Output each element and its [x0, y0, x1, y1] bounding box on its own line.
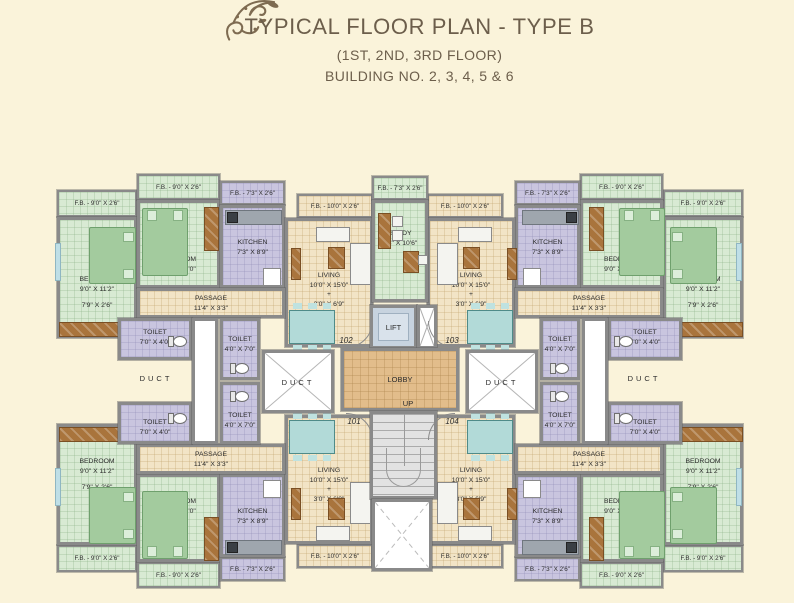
- toilet-room: TOILET 7'0" X 4'0": [118, 318, 192, 360]
- flower-bed: F.B. - 9'0" X 2'6": [663, 190, 743, 217]
- dining-table: [289, 310, 335, 344]
- coffee-table: [328, 247, 345, 269]
- room-label: TOILET 4'0" X 7'0": [223, 411, 257, 430]
- stair-landing: [386, 448, 421, 487]
- flower-bed: F.B. - 7'3" X 2'6": [220, 557, 285, 581]
- tv-unit: [291, 248, 301, 280]
- toilet-room: TOILET 4'0" X 7'0": [540, 382, 580, 444]
- room-size: 7'9" X 2'6": [666, 301, 740, 311]
- sofa: [316, 227, 350, 242]
- room-size: 11'4" X 3'3": [140, 460, 282, 470]
- plus-sign: +: [430, 290, 512, 300]
- double-bed: [670, 227, 717, 284]
- toilet-room: TOILET 4'0" X 7'0": [220, 382, 260, 444]
- room-label: KITCHEN 7'3" X 8'9": [223, 507, 282, 526]
- room-size: 9'0" X 11'2": [60, 467, 134, 477]
- passage: PASSAGE 11'4" X 3'3": [515, 444, 663, 474]
- lift-label: LIFT: [373, 323, 414, 332]
- room-name: TOILET: [543, 335, 577, 345]
- room-name: TOILET: [223, 335, 257, 345]
- passage: PASSAGE 11'4" X 3'3": [137, 444, 285, 474]
- fb-label: F.B. - 9'0" X 2'6": [74, 200, 119, 207]
- sofa: [350, 482, 371, 524]
- dining-table: [467, 310, 513, 344]
- toilet-room: TOILET 7'0" X 4'0": [608, 318, 682, 360]
- bedroom-room: BEDROOM 9'0" X 10'0": [580, 474, 663, 562]
- passage: PASSAGE 11'4" X 3'3": [137, 288, 285, 318]
- wardrobe: [589, 207, 604, 251]
- sofa: [316, 526, 350, 541]
- fridge: [263, 268, 281, 286]
- flower-bed: F.B. - 7'3" X 2'6": [372, 176, 428, 200]
- room-name: PASSAGE: [140, 450, 282, 460]
- window: [55, 243, 61, 281]
- sofa: [350, 243, 371, 285]
- double-bed: [142, 491, 188, 559]
- duct-shaft: [582, 318, 608, 444]
- room-size: 11'4" X 3'3": [140, 304, 282, 314]
- double-bed: [89, 487, 136, 544]
- study-desk: [378, 213, 391, 249]
- fb-label: F.B. - 7'3" X 2'6": [230, 190, 275, 197]
- sofa: [437, 482, 458, 524]
- flower-bed: F.B. - 7'3" X 2'6": [515, 557, 580, 581]
- sofa: [458, 227, 492, 242]
- room-label: PASSAGE 11'4" X 3'3": [140, 294, 282, 313]
- lift: LIFT: [370, 305, 417, 349]
- unit-number: 103: [440, 336, 464, 345]
- chair: [392, 230, 403, 241]
- flower-bed: F.B. - 9'0" X 2'6": [580, 174, 663, 200]
- bedroom-room: BEDROOM 9'0" X 10'0": [137, 200, 220, 288]
- flower-bed: F.B. - 9'0" X 2'6": [663, 545, 743, 572]
- room-size: 4'0" X 7'0": [543, 421, 577, 431]
- tv-unit: [507, 248, 517, 280]
- room-name: KITCHEN: [518, 238, 577, 248]
- room-name: KITCHEN: [223, 238, 282, 248]
- wc-fixture: [555, 391, 569, 402]
- fb-label: F.B. - 9'0" X 2'6": [74, 555, 119, 562]
- room-name: KITCHEN: [223, 507, 282, 517]
- flower-bed: F.B. - 10'0" X 2'6": [297, 544, 373, 568]
- room-name: KITCHEN: [518, 507, 577, 517]
- room-name: LIVING: [288, 466, 370, 476]
- fb-label: F.B. - 7'3" X 2'6": [230, 566, 275, 573]
- fb-label: F.B. - 7'3" X 2'6": [525, 190, 570, 197]
- lobby-label: LOBBY: [344, 375, 456, 384]
- fb-label: F.B. - 10'0" X 2'6": [441, 203, 490, 210]
- double-bed: [670, 487, 717, 544]
- coffee-table: [328, 498, 345, 520]
- unit-number: 102: [334, 336, 358, 345]
- double-bed: [89, 227, 136, 284]
- fridge: [523, 480, 541, 498]
- fb-label: F.B. - 7'3" X 2'6": [377, 185, 422, 192]
- double-bed: [142, 208, 188, 276]
- room-name: PASSAGE: [140, 294, 282, 304]
- fb-label: F.B. - 9'0" X 2'6": [680, 200, 725, 207]
- room-name: BEDROOM: [666, 457, 740, 467]
- kitchen-room: KITCHEN 7'3" X 8'9": [515, 474, 580, 557]
- room-size: 7'0" X 4'0": [121, 428, 189, 438]
- wardrobe: [589, 517, 604, 561]
- flower-bed: F.B. - 9'0" X 2'6": [137, 562, 220, 588]
- stove: [566, 542, 577, 553]
- floor-plan-page: TYPICAL FLOOR PLAN - TYPE B (1ST, 2ND, 3…: [0, 0, 794, 603]
- duct-label: DUCT: [120, 374, 192, 383]
- wardrobe: [204, 207, 219, 251]
- duct-shaft: [192, 318, 218, 444]
- room-label: TOILET 4'0" X 7'0": [543, 411, 577, 430]
- room-name: PASSAGE: [518, 294, 660, 304]
- room-label: KITCHEN 7'3" X 8'9": [518, 238, 577, 257]
- floor-plan: F.B. - 9'0" X 2'6" BEDROOM 9'0" X 11'2" …: [0, 0, 794, 603]
- double-bed: [619, 491, 665, 559]
- toilet-room: TOILET 7'0" X 4'0": [608, 402, 682, 444]
- fb-label: F.B. - 9'0" X 2'6": [156, 572, 201, 579]
- flower-bed: F.B. - 9'0" X 2'6": [57, 545, 137, 572]
- bedroom-room: BEDROOM 9'0" X 10'0": [137, 474, 220, 562]
- coffee-table: [463, 498, 480, 520]
- unit-number: 104: [440, 417, 464, 426]
- wc-fixture: [173, 336, 187, 347]
- duct-shaft: [372, 499, 432, 571]
- coffee-table: [463, 247, 480, 269]
- fb-label: F.B. - 10'0" X 2'6": [311, 203, 360, 210]
- stove: [227, 212, 238, 223]
- fridge: [263, 480, 281, 498]
- double-bed: [619, 208, 665, 276]
- wc-fixture: [555, 363, 569, 374]
- tv-unit: [507, 488, 517, 520]
- flower-bed: F.B. - 9'0" X 2'6": [580, 562, 663, 588]
- wc-fixture: [619, 413, 633, 424]
- fb-label: F.B. - 9'0" X 2'6": [599, 572, 644, 579]
- sofa: [458, 526, 492, 541]
- room-label: KITCHEN 7'3" X 8'9": [518, 507, 577, 526]
- duct-label: DUCT: [608, 374, 680, 383]
- wc-fixture: [619, 336, 633, 347]
- toilet-room: TOILET 4'0" X 7'0": [220, 318, 260, 380]
- fb-label: F.B. - 10'0" X 2'6": [441, 553, 490, 560]
- fb-label: F.B. - 9'0" X 2'6": [599, 184, 644, 191]
- flower-bed: F.B. - 9'0" X 2'6": [137, 174, 220, 200]
- room-size: 11'4" X 3'3": [518, 460, 660, 470]
- room-size: 9'0" X 11'2": [60, 285, 134, 295]
- fridge: [523, 268, 541, 286]
- passage: PASSAGE 11'4" X 3'3": [515, 288, 663, 318]
- chair: [418, 255, 428, 265]
- room-name: TOILET: [543, 411, 577, 421]
- window: [55, 468, 61, 506]
- room-size: 4'0" X 7'0": [543, 345, 577, 355]
- wc-fixture: [173, 413, 187, 424]
- fb-label: F.B. - 9'0" X 2'6": [156, 184, 201, 191]
- room-name: PASSAGE: [518, 450, 660, 460]
- wc-fixture: [235, 363, 249, 374]
- toilet-room: TOILET 7'0" X 4'0": [118, 402, 192, 444]
- room-name: TOILET: [223, 411, 257, 421]
- room-size: 7'3" X 8'9": [518, 517, 577, 527]
- flower-bed: F.B. - 7'3" X 2'6": [220, 181, 285, 205]
- stove: [227, 542, 238, 553]
- room-label: PASSAGE 11'4" X 3'3": [518, 450, 660, 469]
- room-size: 7'0" X 4'0": [611, 428, 679, 438]
- stove: [566, 212, 577, 223]
- fb-label: F.B. - 9'0" X 2'6": [680, 555, 725, 562]
- flower-bed: F.B. - 9'0" X 2'6": [57, 190, 137, 217]
- unit-number: 101: [342, 417, 366, 426]
- window: [736, 243, 742, 281]
- room-size: 7'3" X 8'9": [518, 248, 577, 258]
- room-size: 9'0" X 11'2": [666, 285, 740, 295]
- sofa: [437, 243, 458, 285]
- kitchen-room: KITCHEN 7'3" X 8'9": [220, 205, 285, 288]
- room-label: TOILET 4'0" X 7'0": [543, 335, 577, 354]
- room-size: 11'4" X 3'3": [518, 304, 660, 314]
- room-size: 7'3" X 8'9": [223, 517, 282, 527]
- duct: DUCT: [466, 350, 538, 413]
- room-size: 4'0" X 7'0": [223, 421, 257, 431]
- dining-table: [289, 420, 335, 454]
- room-size: 7'9" X 2'6": [60, 301, 134, 311]
- staircase: [370, 411, 437, 499]
- duct-label: DUCT: [265, 378, 331, 387]
- wc-fixture: [235, 391, 249, 402]
- fb-label: F.B. - 10'0" X 2'6": [311, 553, 360, 560]
- room-label: PASSAGE 11'4" X 3'3": [518, 294, 660, 313]
- tv-unit: [291, 488, 301, 520]
- chair: [392, 216, 403, 227]
- dashed-cross-icon: [375, 502, 429, 568]
- toilet-room: TOILET 4'0" X 7'0": [540, 318, 580, 380]
- study-room: STUDY 7'3" X 10'6": [372, 200, 428, 302]
- up-label: UP: [388, 399, 428, 408]
- wardrobe: [204, 517, 219, 561]
- study-table: [403, 251, 419, 273]
- plus-sign: +: [288, 290, 370, 300]
- flower-bed: F.B. - 10'0" X 2'6": [297, 194, 373, 218]
- window: [736, 468, 742, 506]
- flower-bed: F.B. - 10'0" X 2'6": [427, 194, 503, 218]
- flower-bed: F.B. - 10'0" X 2'6": [427, 544, 503, 568]
- room-name: BEDROOM: [60, 457, 134, 467]
- room-label: KITCHEN 7'3" X 8'9": [223, 238, 282, 257]
- kitchen-room: KITCHEN 7'3" X 8'9": [515, 205, 580, 288]
- dining-table: [467, 420, 513, 454]
- fb-label: F.B. - 7'3" X 2'6": [525, 566, 570, 573]
- kitchen-room: KITCHEN 7'3" X 8'9": [220, 474, 285, 557]
- room-label: TOILET 4'0" X 7'0": [223, 335, 257, 354]
- duct: DUCT: [262, 350, 334, 413]
- room-size: 4'0" X 7'0": [223, 345, 257, 355]
- flower-bed: F.B. - 7'3" X 2'6": [515, 181, 580, 205]
- duct-label: DUCT: [469, 378, 535, 387]
- room-name: LIVING: [430, 466, 512, 476]
- room-size: 9'0" X 11'2": [666, 467, 740, 477]
- bedroom-room: BEDROOM 9'0" X 10'0": [580, 200, 663, 288]
- room-label: PASSAGE 11'4" X 3'3": [140, 450, 282, 469]
- room-size: 7'3" X 8'9": [223, 248, 282, 258]
